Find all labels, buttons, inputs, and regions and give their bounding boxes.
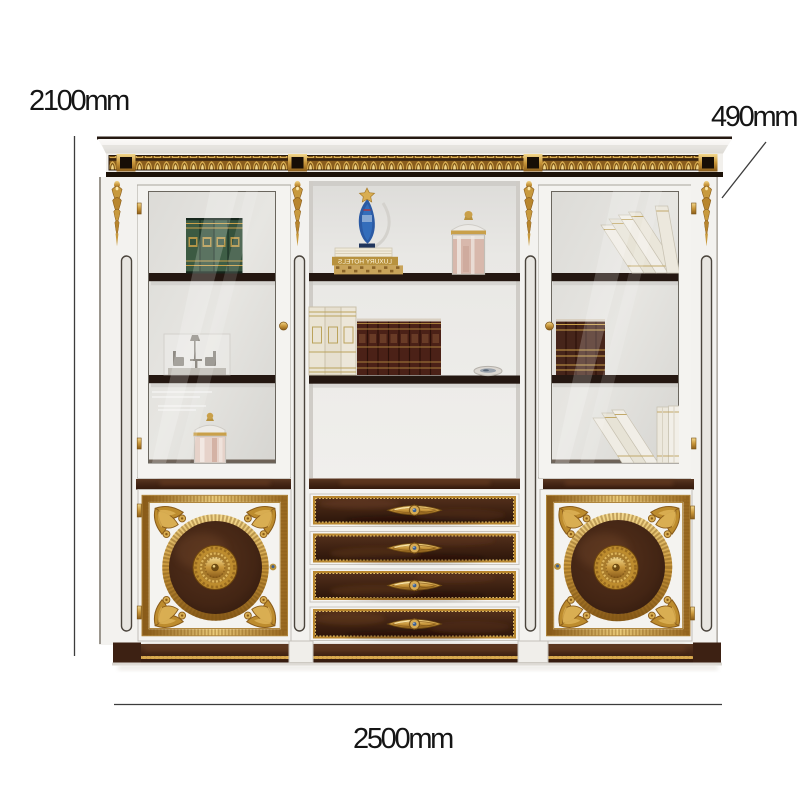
svg-text:LUXURY HOTELS: LUXURY HOTELS bbox=[337, 259, 392, 266]
